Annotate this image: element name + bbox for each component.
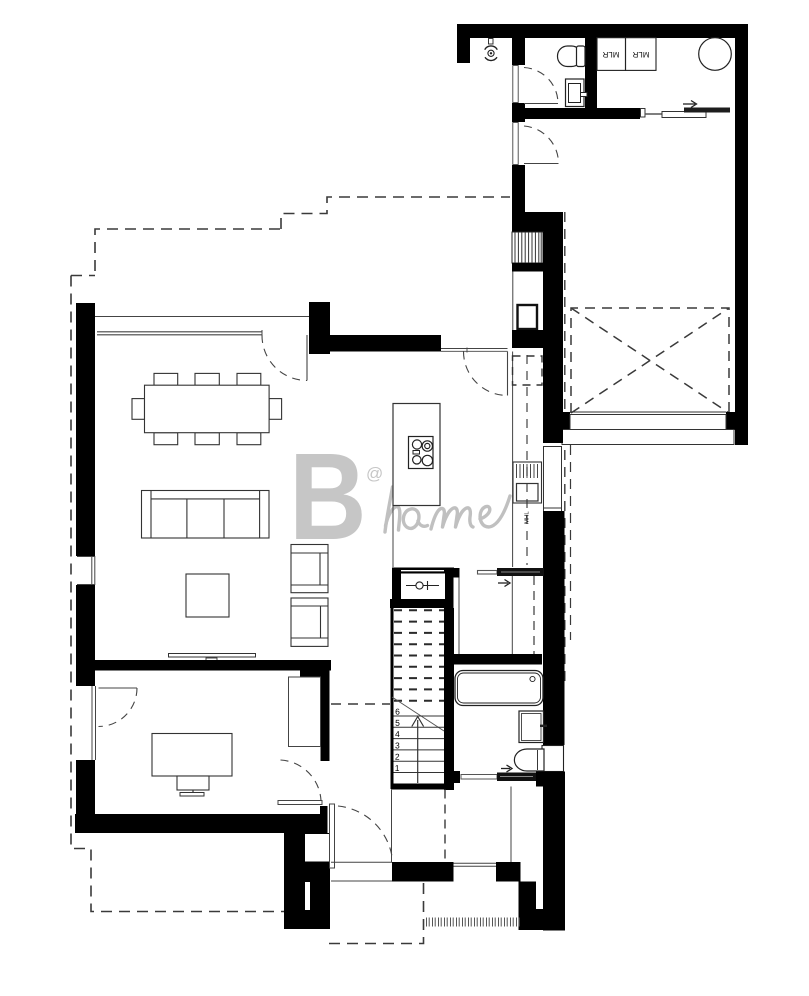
svg-text:MLR: MLR bbox=[602, 50, 619, 59]
svg-text:MHL: MHL bbox=[524, 511, 530, 524]
svg-text:5: 5 bbox=[395, 718, 400, 728]
svg-text:4: 4 bbox=[395, 729, 400, 739]
svg-text:1: 1 bbox=[395, 763, 400, 773]
svg-text:2: 2 bbox=[395, 752, 400, 762]
svg-text:MLR: MLR bbox=[632, 50, 649, 59]
svg-text:3: 3 bbox=[395, 740, 400, 750]
svg-text:@: @ bbox=[366, 464, 383, 483]
svg-text:6: 6 bbox=[395, 706, 400, 716]
